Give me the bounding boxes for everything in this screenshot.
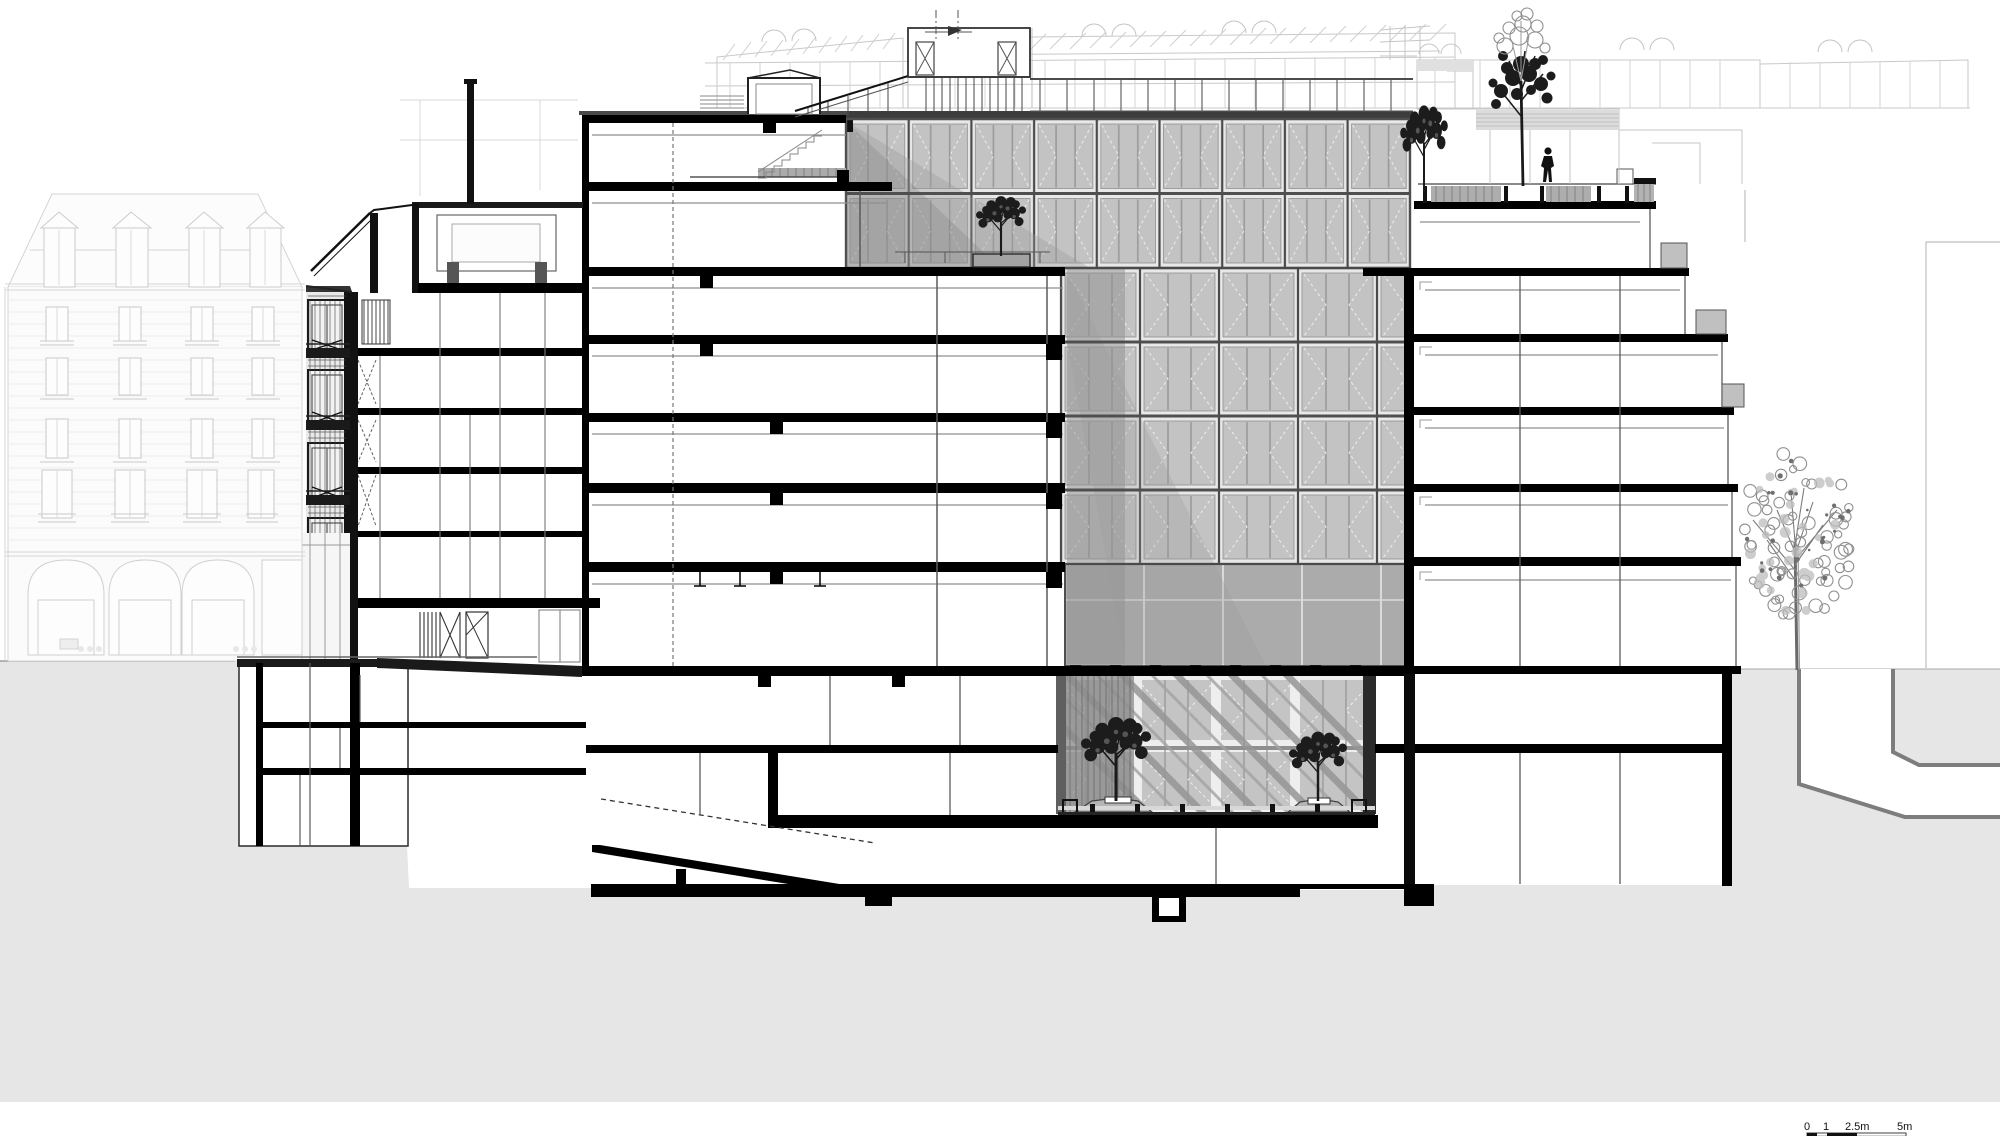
svg-text:0: 0 — [1804, 1121, 1810, 1133]
svg-text:2.5m: 2.5m — [1845, 1121, 1869, 1133]
svg-text:1: 1 — [1823, 1121, 1829, 1133]
svg-text:5m: 5m — [1897, 1121, 1912, 1133]
